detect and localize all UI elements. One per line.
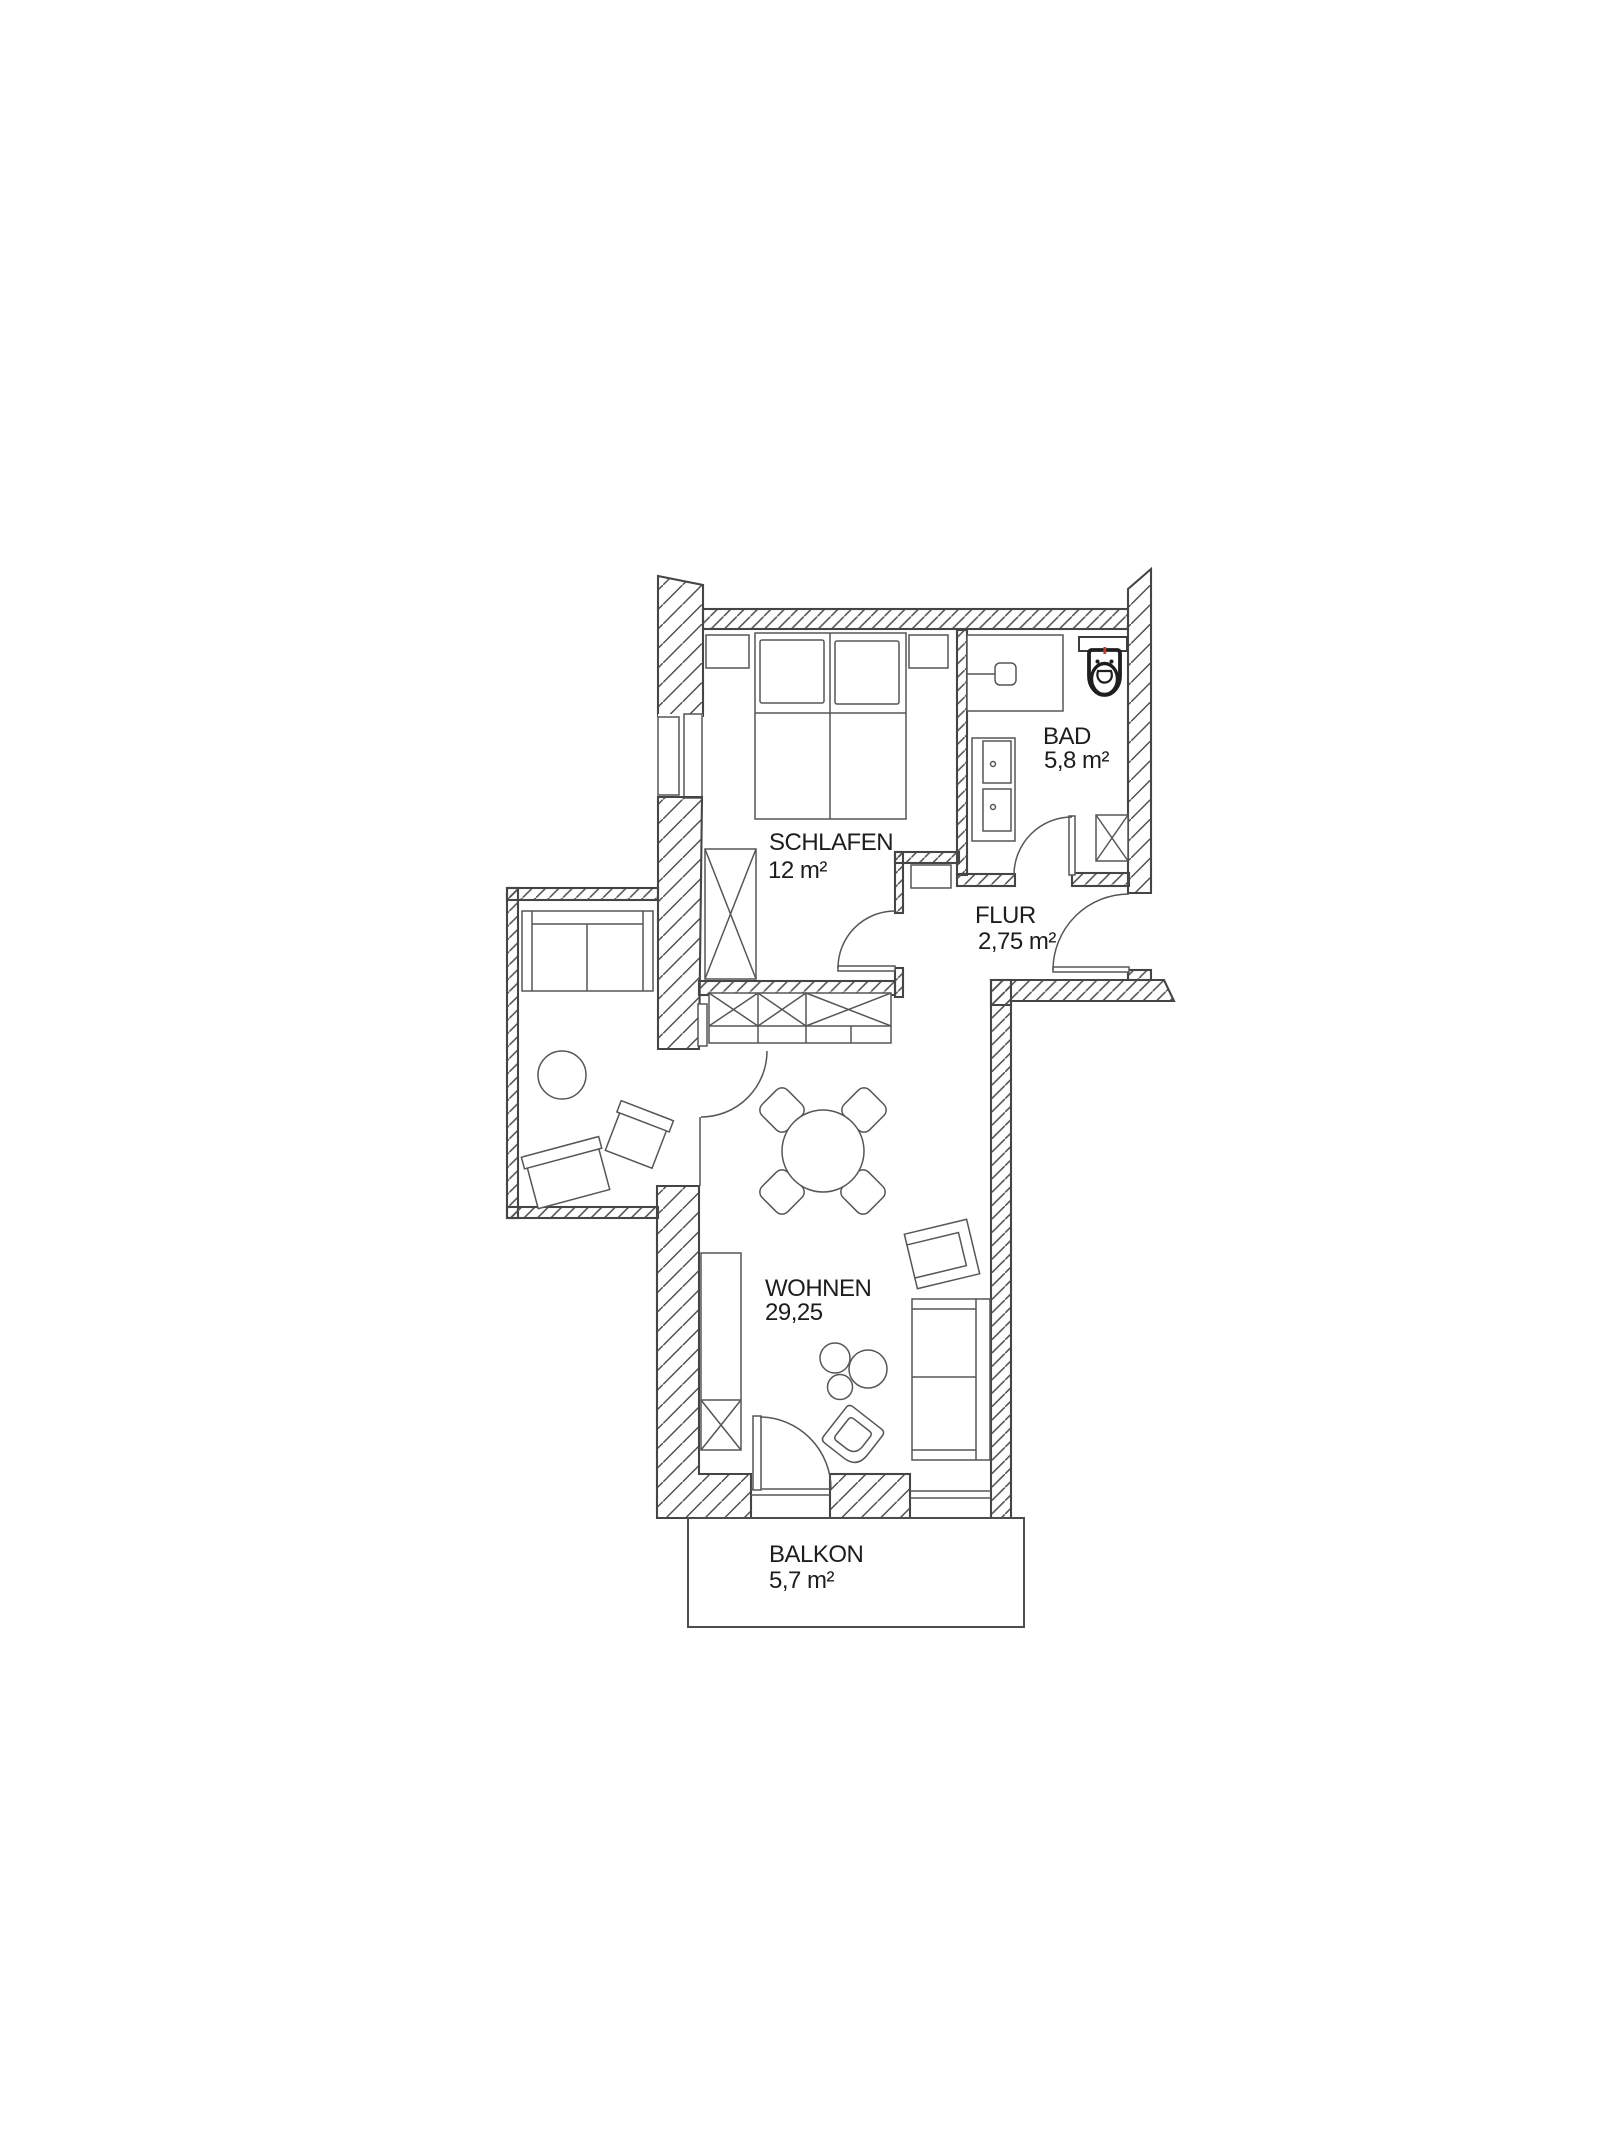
svg-text:BAD: BAD	[1043, 723, 1091, 750]
svg-text:WOHNEN: WOHNEN	[765, 1275, 871, 1302]
svg-text:5,8 m²: 5,8 m²	[1044, 747, 1110, 774]
svg-text:FLUR: FLUR	[975, 902, 1036, 929]
svg-text:BALKON: BALKON	[769, 1541, 863, 1568]
svg-text:5,7 m²: 5,7 m²	[769, 1567, 835, 1594]
svg-text:12 m²: 12 m²	[768, 857, 827, 884]
svg-text:2,75 m²: 2,75 m²	[978, 928, 1056, 955]
svg-text:29,25: 29,25	[765, 1299, 823, 1326]
svg-text:SCHLAFEN: SCHLAFEN	[769, 829, 893, 856]
